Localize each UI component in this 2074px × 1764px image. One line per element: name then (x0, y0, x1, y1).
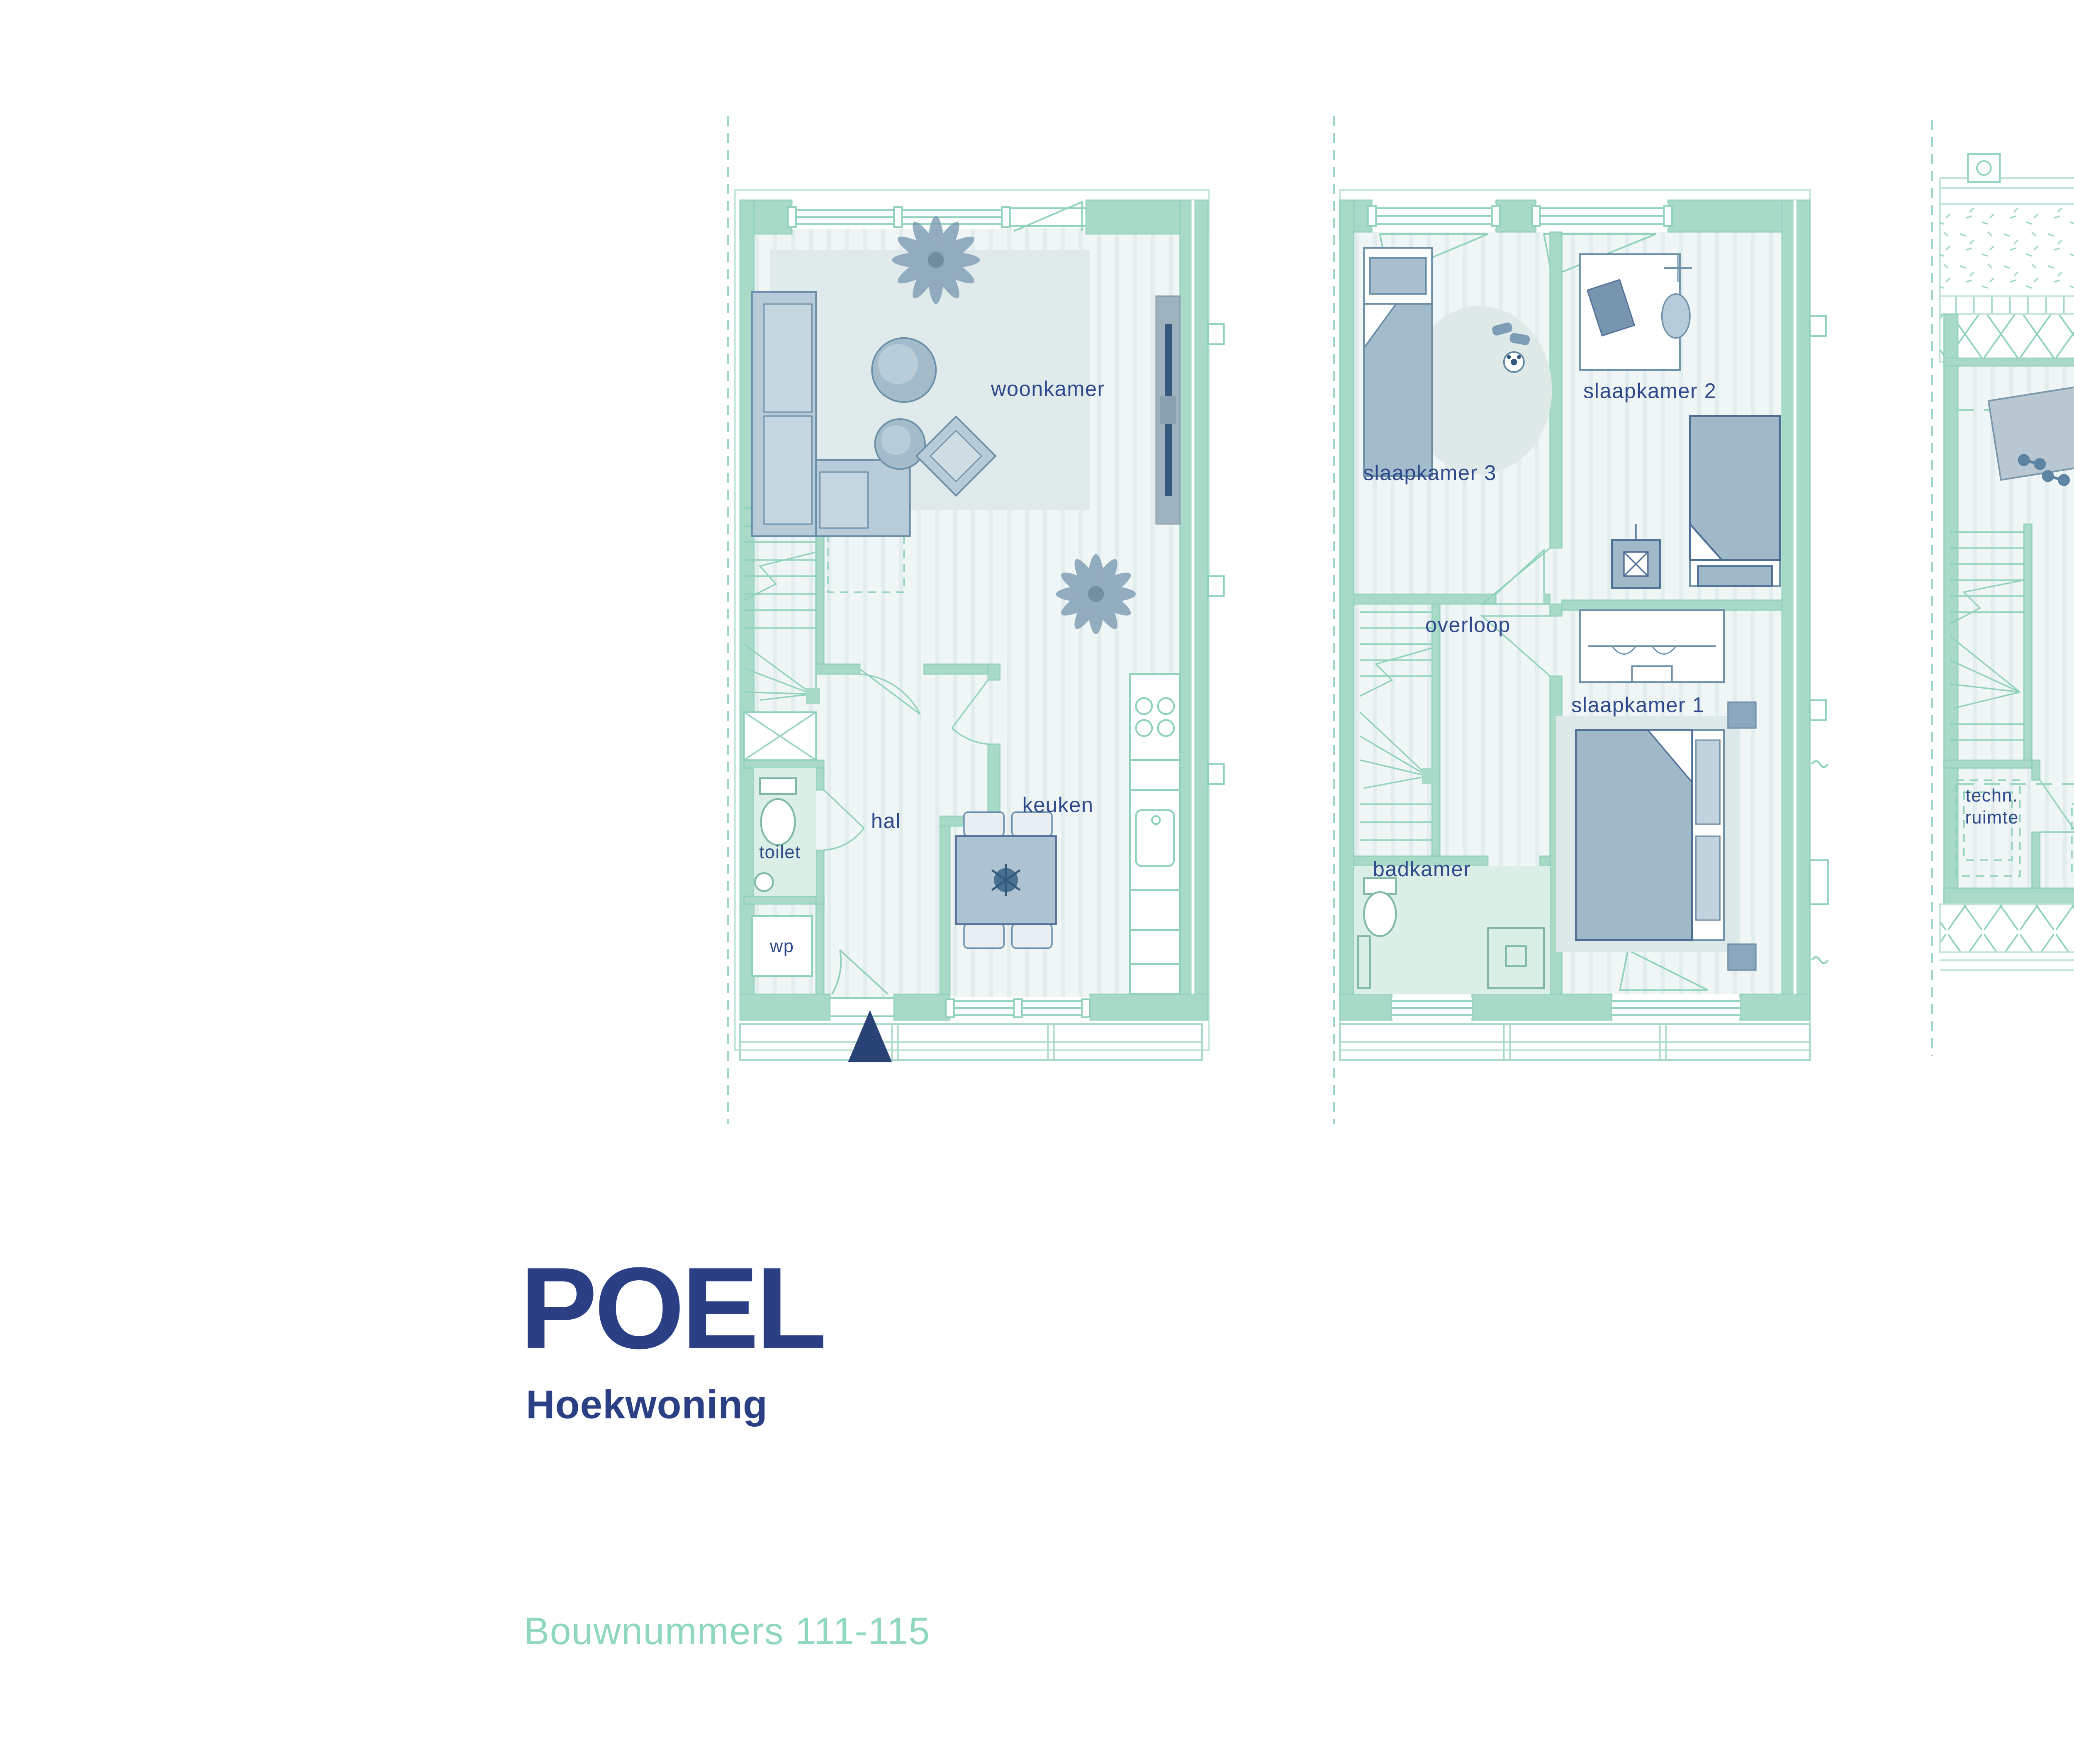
room-label-wp: wp (770, 936, 794, 956)
gutter-band (1940, 296, 2074, 314)
tv-cabinet (1156, 296, 1180, 524)
brochure-page: woonkamer hal keuken toilet wp slaapkame… (0, 0, 2074, 1764)
single-bed (1364, 248, 1432, 476)
facade-vents (1810, 316, 1828, 904)
roof-insulation-band (1940, 904, 2074, 952)
room-label-slaapkamer3: slaapkamer 3 (1363, 462, 1497, 486)
room-label-slaapkamer2: slaapkamer 2 (1583, 380, 1716, 404)
room-label-badkamer: badkamer (1373, 858, 1471, 882)
room-label-techn-ruimte: techn. ruimte (1950, 786, 2034, 831)
football-icon (1504, 352, 1524, 372)
page-subtitle: Hoekwoning (526, 1384, 768, 1430)
room-label-toilet: toilet (759, 842, 801, 862)
room-label-slaapkamer1: slaapkamer 1 (1571, 694, 1704, 718)
kitchen-counter (1130, 674, 1180, 994)
entrance-arrow-icon (848, 1010, 892, 1062)
room-label-hal: hal (871, 810, 901, 834)
bed-slaapkamer2 (1690, 416, 1780, 586)
roof-insulation-band (1940, 314, 2074, 362)
chimney (1968, 154, 2000, 182)
desk (1580, 254, 1692, 370)
facade-vents (1208, 324, 1224, 784)
floorplan-first-floor (1312, 100, 1832, 1140)
railing-band (1340, 1024, 1810, 1060)
terrace-band (740, 1024, 1202, 1060)
bouwnummers-text: Bouwnummers 111-115 (524, 1612, 930, 1656)
page-title: POEL (520, 1252, 824, 1368)
meter-cupboard (744, 712, 816, 760)
wardrobe (1580, 610, 1724, 682)
roof-surface (1940, 204, 2074, 296)
room-label-keuken: keuken (1022, 794, 1094, 818)
room-label-woonkamer: woonkamer (991, 378, 1105, 402)
floorplan-attic (1912, 100, 2074, 1080)
roof-edge (1940, 960, 2074, 970)
room-label-overloop: overloop (1425, 614, 1511, 638)
floorplan-ground-floor (712, 100, 1232, 1140)
